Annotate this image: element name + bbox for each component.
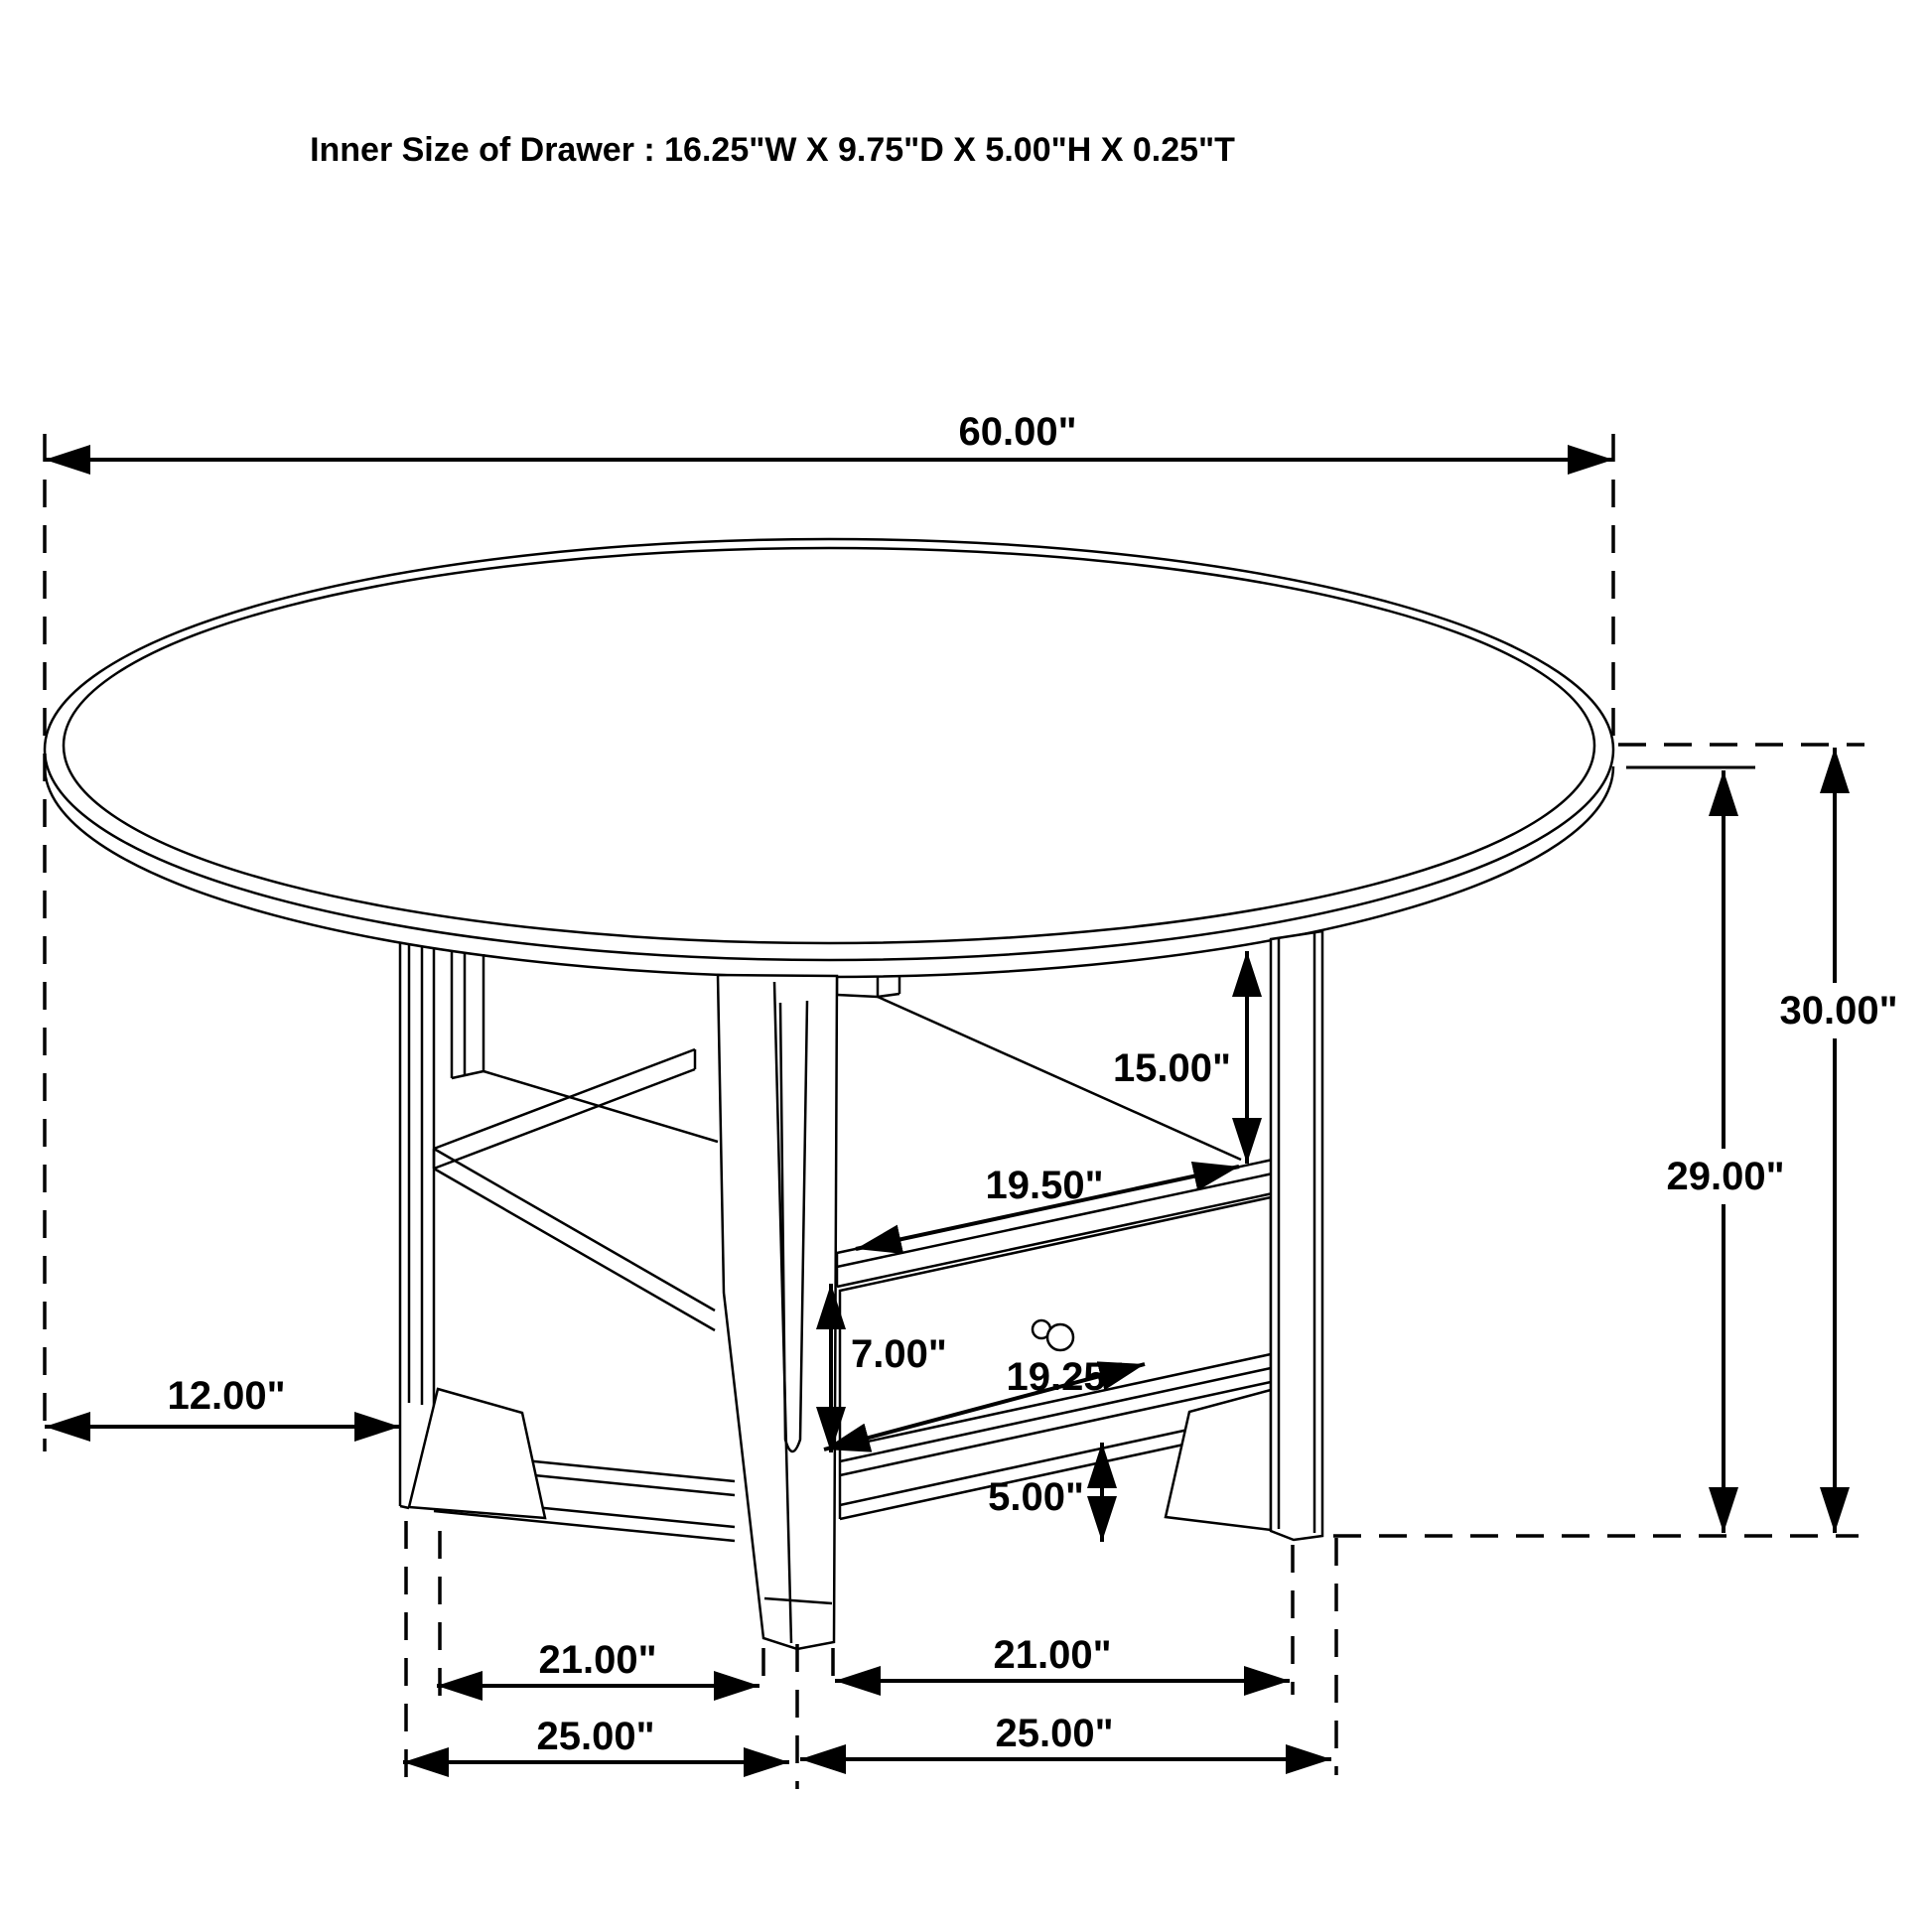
shelf-front-left-edge-bottom <box>434 1169 715 1330</box>
dim-label-21-left: 21.00" <box>538 1638 656 1682</box>
drawer-knob <box>1047 1324 1073 1350</box>
dim-clearance-5: 5.00" <box>988 1443 1102 1542</box>
dim-label-21-right: 21.00" <box>993 1633 1111 1677</box>
dim-leg-span-21-left: 21.00" <box>437 1638 759 1686</box>
dim-height-29: 29.00" <box>1666 770 1784 1533</box>
diagram-page: Inner Size of Drawer : 16.25"W X 9.75"D … <box>0 0 1932 1932</box>
dim-label-5: 5.00" <box>988 1475 1084 1519</box>
dim-label-7: 7.00" <box>851 1332 947 1376</box>
drawing-title: Inner Size of Drawer : 16.25"W X 9.75"D … <box>310 131 1235 169</box>
dim-overhang-12: 12.00" <box>45 1374 400 1427</box>
shelf-back-edge <box>434 1049 695 1149</box>
dim-label-25-right: 25.00" <box>995 1712 1113 1755</box>
dim-label-1925: 19.25" <box>1006 1355 1124 1399</box>
dim-label-12: 12.00" <box>167 1374 285 1418</box>
dim-label-29: 29.00" <box>1666 1155 1784 1198</box>
dim-label-60: 60.00" <box>958 410 1076 454</box>
dim-leg-span-21-right: 21.00" <box>835 1633 1290 1681</box>
tabletop-outer-edge <box>45 539 1613 960</box>
dimension-diagram: Inner Size of Drawer : 16.25"W X 9.75"D … <box>0 0 1932 1932</box>
dim-label-15: 15.00" <box>1113 1046 1231 1090</box>
dim-label-30: 30.00" <box>1779 989 1897 1033</box>
back-leg <box>452 951 718 1142</box>
inner-wall-edge-left <box>483 1071 718 1142</box>
dim-label-1950: 19.50" <box>985 1164 1103 1207</box>
dim-leg-span-25-left: 25.00" <box>403 1715 789 1762</box>
right-leg-foot-wedge <box>1166 1390 1271 1530</box>
shelf <box>434 1049 715 1330</box>
dim-height-30: 30.00" <box>1779 748 1897 1533</box>
center-leg <box>718 975 837 1649</box>
shelf-back-edge-bottom <box>434 1069 695 1169</box>
shelf-front-left-edge <box>434 1149 715 1311</box>
dim-leg-span-25-right: 25.00" <box>800 1712 1331 1759</box>
dim-label-25-left: 25.00" <box>536 1715 654 1758</box>
dim-diameter-60: 60.00" <box>45 410 1613 460</box>
left-leg <box>400 942 545 1518</box>
left-leg-foot-wedge <box>409 1389 545 1518</box>
table-drawing <box>45 539 1613 1649</box>
